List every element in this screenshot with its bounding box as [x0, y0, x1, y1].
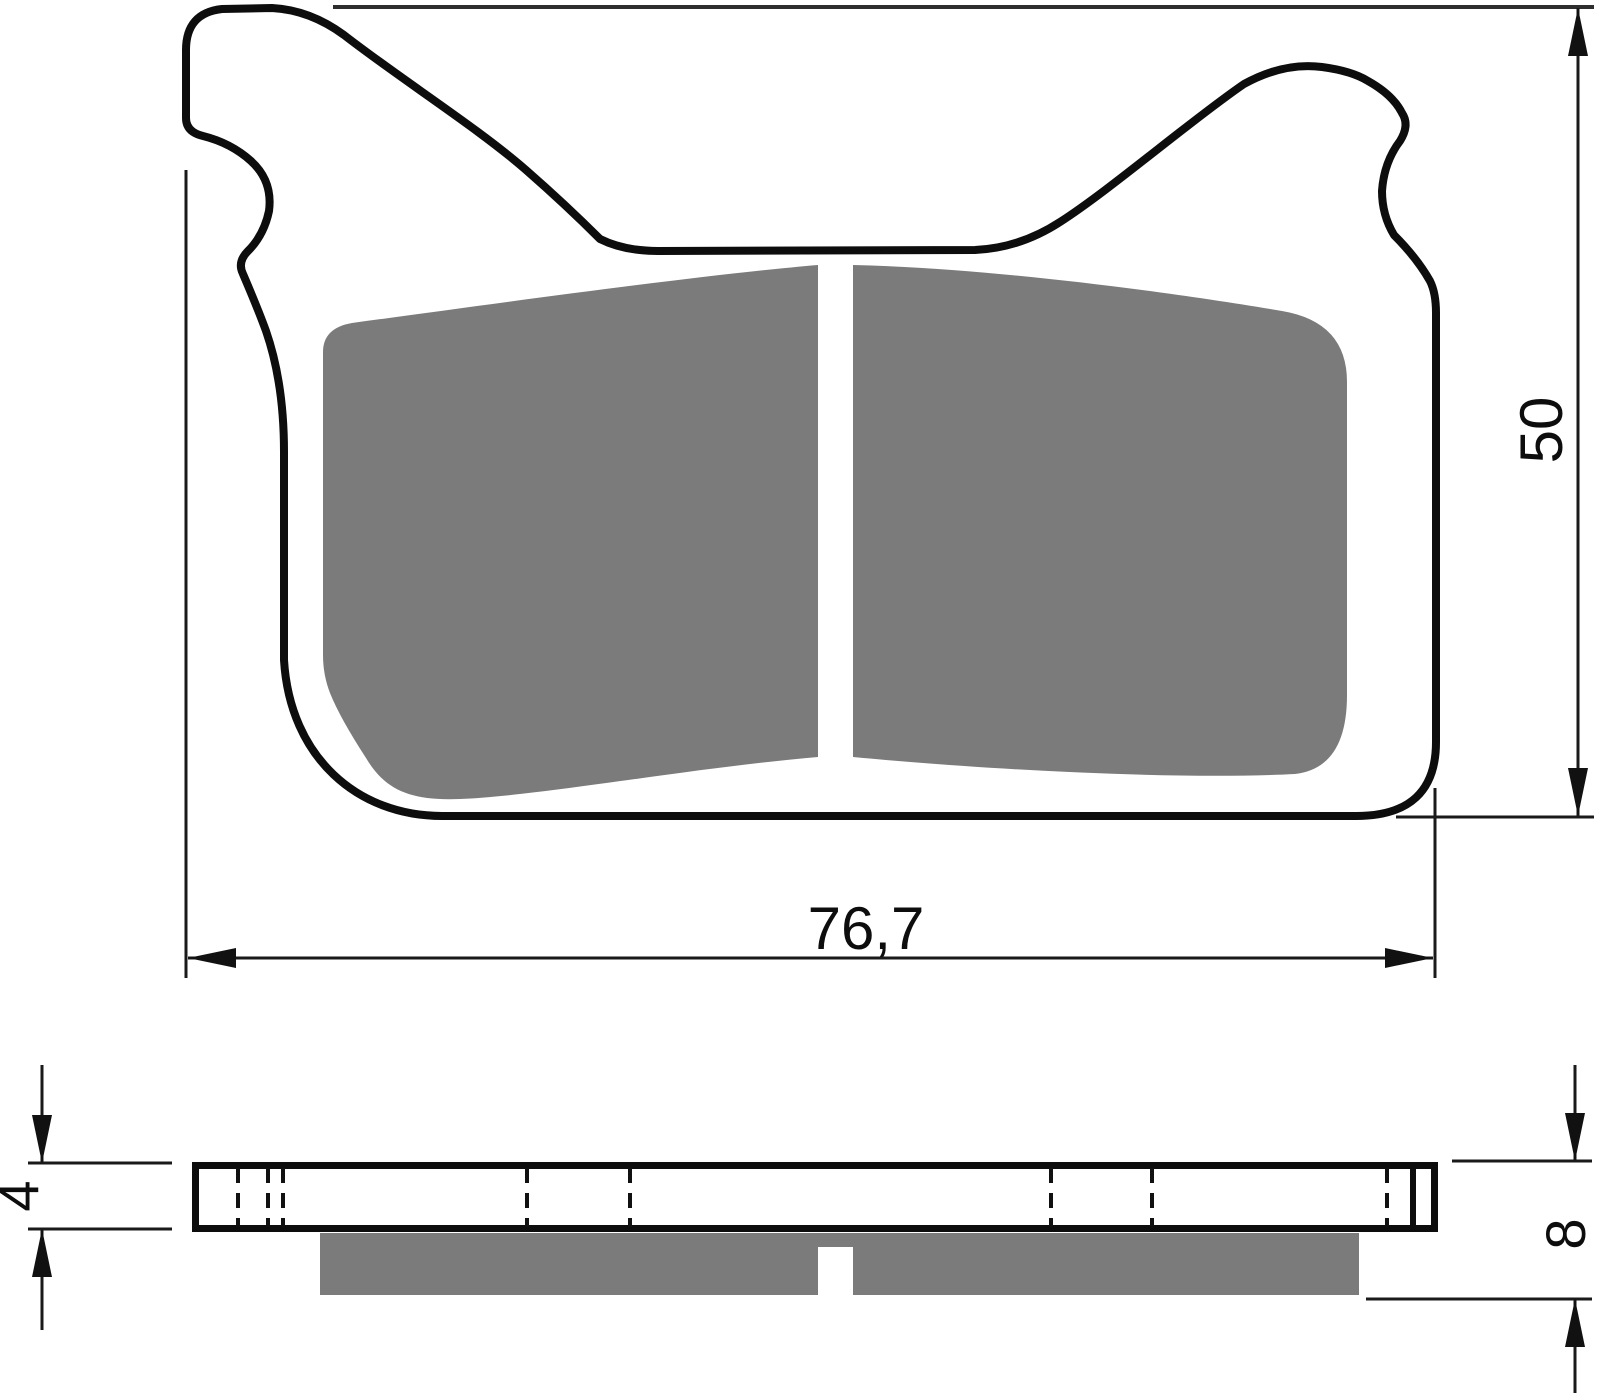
- dimension-plate-thickness: 4: [0, 1065, 172, 1330]
- arrowhead-right-icon: [1385, 948, 1433, 968]
- side-view: [196, 1166, 1435, 1296]
- backing-plate-side: [196, 1166, 1435, 1229]
- arrowhead-up-icon: [32, 1229, 52, 1277]
- front-view: [186, 8, 1436, 816]
- arrowhead-left-icon: [188, 948, 236, 968]
- dim-width-label: 76,7: [808, 895, 925, 962]
- technical-drawing-canvas: 76,7 50 4 8: [0, 0, 1600, 1395]
- friction-material-right: [853, 265, 1347, 776]
- arrowhead-up-icon: [1568, 8, 1588, 56]
- arrowhead-down-icon: [32, 1115, 52, 1163]
- brake-pad-drawing: 76,7 50 4 8: [0, 0, 1600, 1395]
- dim-total-thickness-label: 8: [1534, 1218, 1597, 1249]
- arrowhead-down-icon: [1565, 1113, 1585, 1161]
- friction-material-left: [323, 265, 818, 799]
- dim-height-label: 50: [1508, 397, 1575, 464]
- arrowhead-down-icon: [1568, 768, 1588, 816]
- arrowhead-up-icon: [1565, 1299, 1585, 1347]
- friction-material-side: [320, 1233, 1359, 1295]
- dim-plate-thickness-label: 4: [0, 1180, 50, 1211]
